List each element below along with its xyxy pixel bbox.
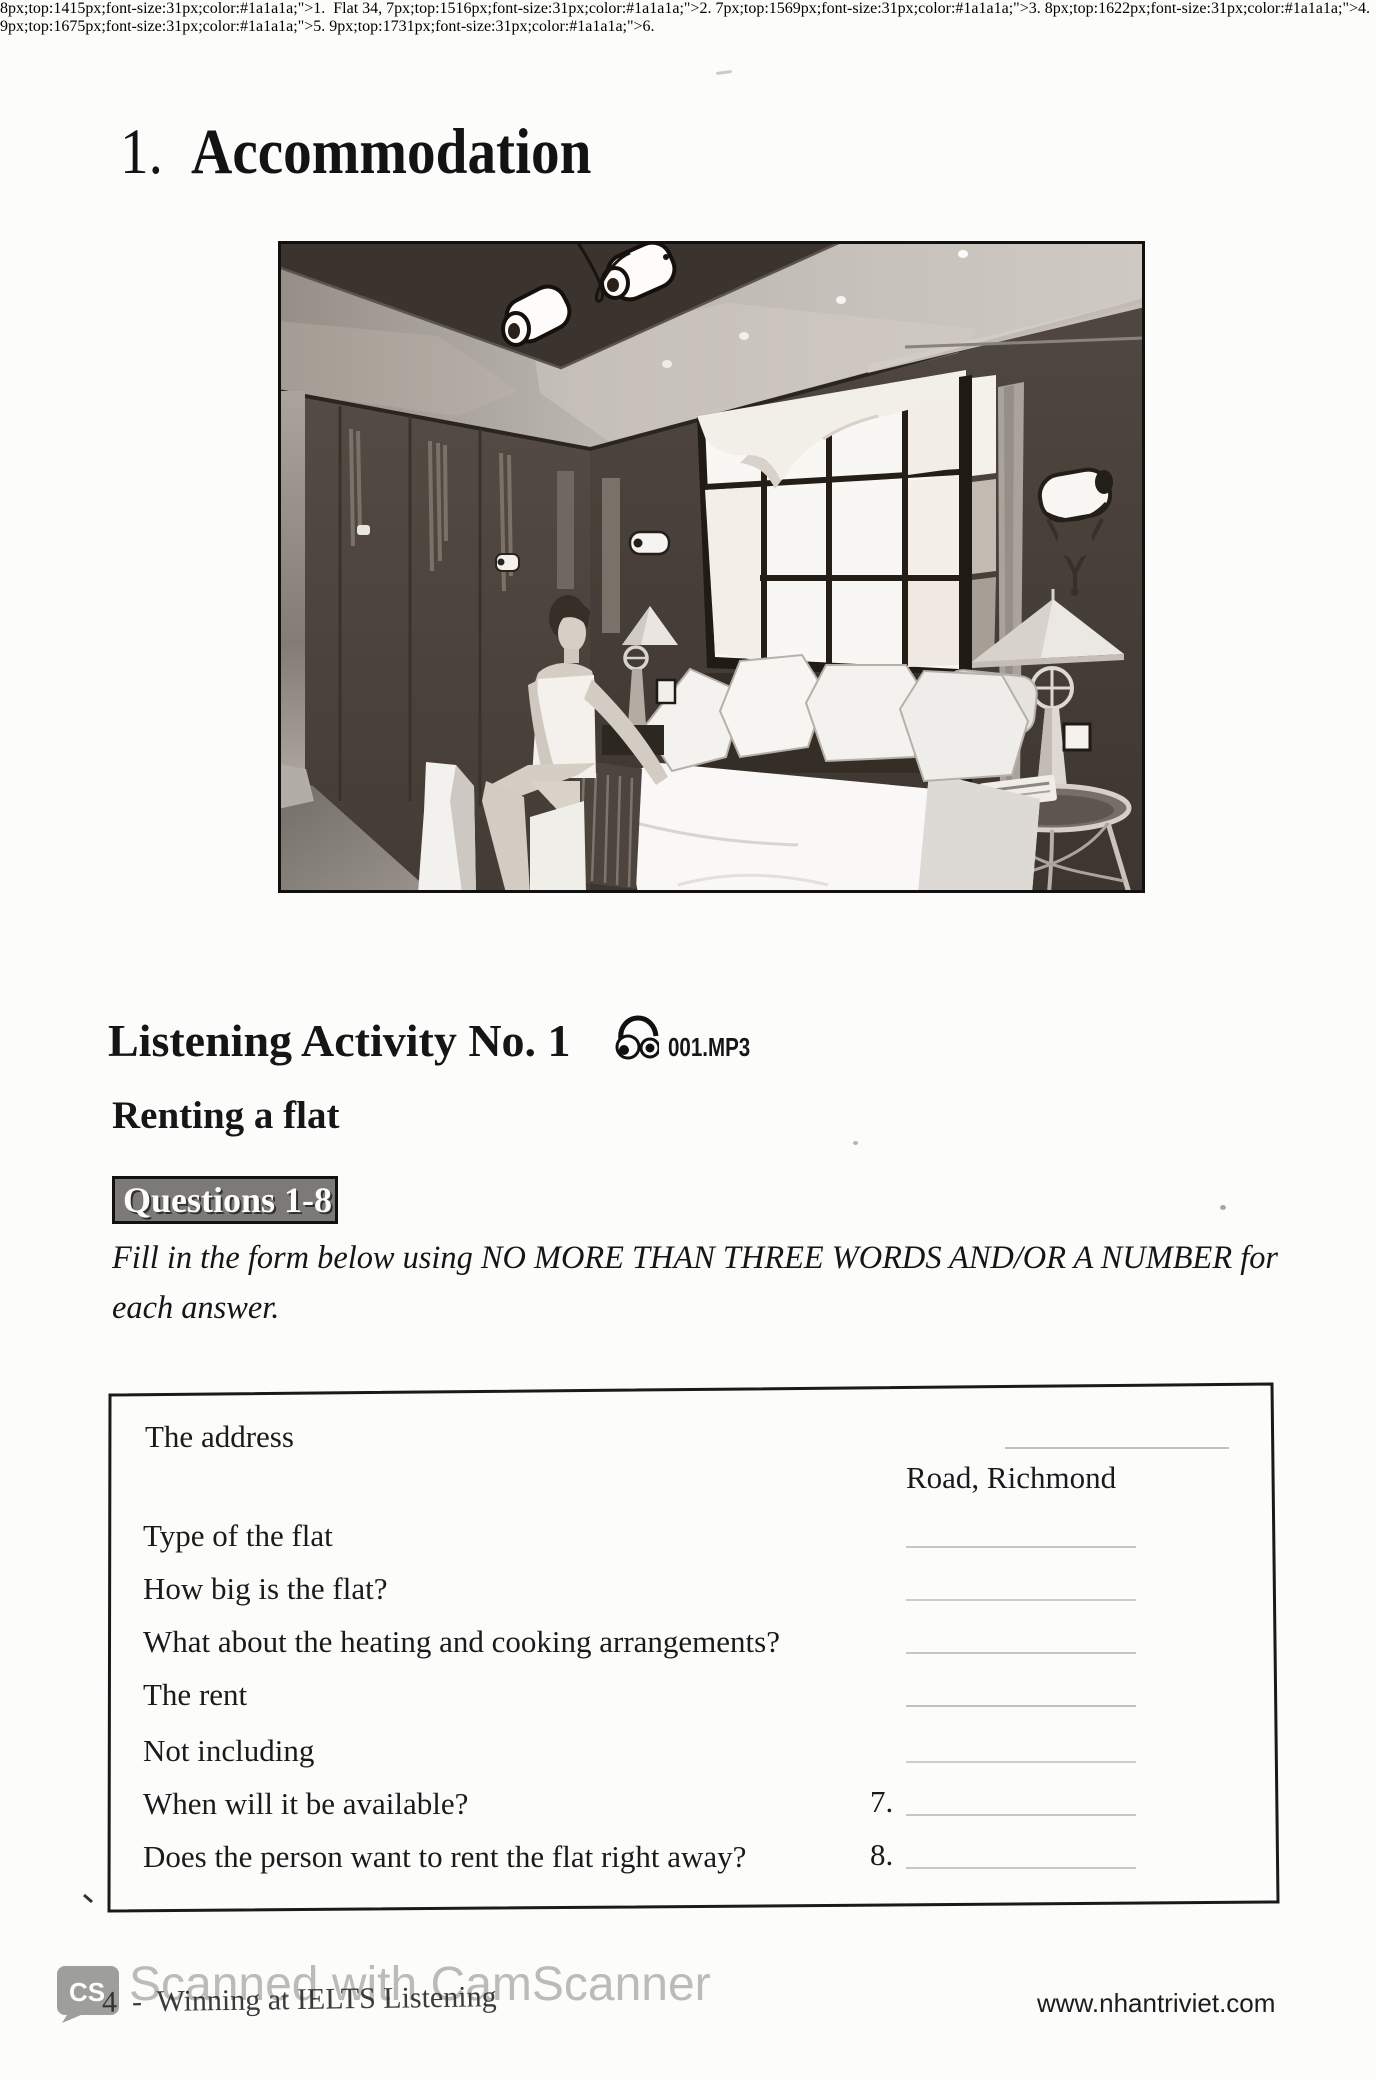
svg-text:CS: CS — [69, 1977, 105, 2007]
